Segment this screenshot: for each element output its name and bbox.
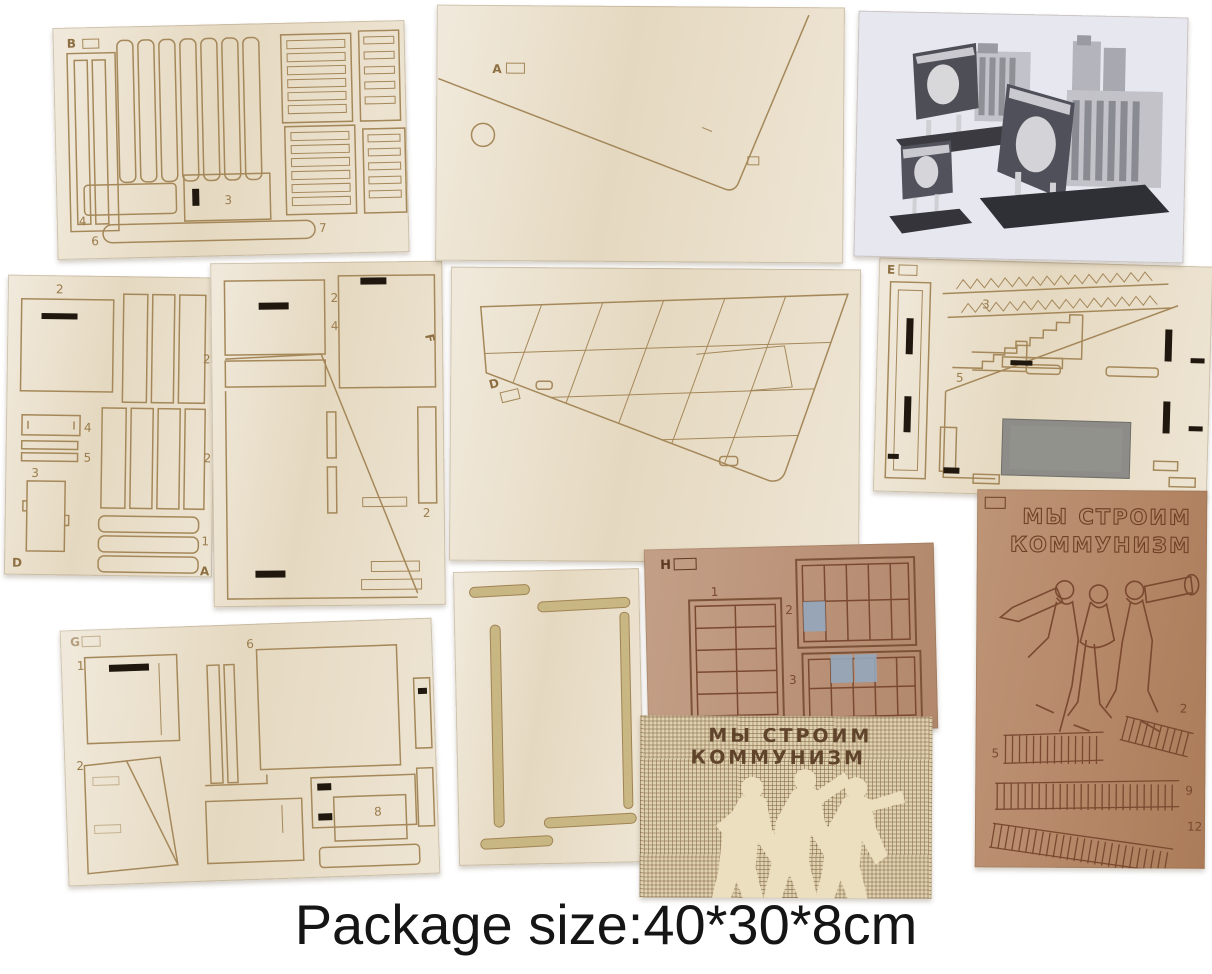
strip-parts-top (122, 294, 205, 403)
panel-part (224, 280, 325, 355)
strip-parts-mid (101, 408, 205, 509)
billboard-face-sheet: МЫ СТРОИМ КОММУНИЗМ (640, 715, 933, 899)
corner-cut (943, 391, 997, 478)
putty-patch (830, 655, 853, 684)
svg-text:2: 2 (203, 451, 211, 465)
slot-cutout (41, 313, 77, 320)
engraved-mark (93, 777, 119, 786)
maker-stamp (899, 265, 917, 275)
svg-text:7: 7 (319, 221, 327, 235)
maker-stamp (985, 497, 1005, 508)
svg-text:4: 4 (331, 319, 339, 333)
engraved-slots (469, 582, 637, 849)
strip-part (418, 407, 437, 503)
worker-figures-outline (1000, 573, 1199, 732)
slot-cutout (259, 302, 289, 309)
sheet-blank-engraving (453, 568, 645, 866)
maker-stamp (82, 636, 100, 647)
sheet-b-label: B (67, 36, 76, 50)
sheet-e-label: E (887, 263, 896, 277)
svg-text:5: 5 (991, 746, 999, 760)
svg-text:3: 3 (789, 673, 797, 687)
bracket-part (22, 415, 80, 436)
base-parts: 4 3 6 7 (78, 172, 327, 249)
svg-text:4: 4 (79, 214, 87, 228)
svg-text:5: 5 (83, 451, 91, 465)
laser-cut-sheet-b: B (52, 20, 409, 260)
side-strip-part (885, 282, 930, 479)
svg-text:3: 3 (31, 466, 39, 480)
render-small (889, 139, 974, 235)
slogan-line-1: МЫ СТРОИМ (1022, 505, 1192, 530)
slot-marks (536, 381, 739, 465)
laser-cut-sheet-f: 2 4 F 2 (210, 261, 446, 607)
svg-text:2: 2 (423, 506, 431, 520)
laser-cut-sheet-h: H 1 2 3 (644, 542, 938, 735)
gray-panel-texture (1009, 425, 1122, 472)
big-panel-part (256, 645, 400, 770)
svg-text:8: 8 (374, 804, 382, 818)
vertical-strip-parts (67, 53, 119, 232)
slat-part (22, 441, 78, 450)
sheet-d-center-engraving: D (449, 267, 861, 564)
slot-cutout (360, 277, 386, 284)
maker-stamp (83, 39, 99, 48)
edge-slots (1163, 329, 1206, 434)
svg-text:1: 1 (201, 534, 209, 548)
package-size-caption: Package size:40*30*8cm (0, 892, 1212, 957)
sheet-d-left-corner-label: A (200, 564, 210, 577)
laser-cut-sheet-relief: МЫ СТРОИМ КОММУНИЗМ 2 5 (975, 489, 1208, 869)
relief-sheet-engraving: МЫ СТРОИМ КОММУНИЗМ 2 5 (975, 489, 1208, 869)
inner-line (159, 663, 162, 735)
maker-stamp (506, 63, 524, 73)
slot-panel-part: 8 (311, 774, 420, 868)
sheet-b-engraving: B (52, 20, 409, 260)
sheet-g-engraving: G 1 2 6 8 (60, 618, 441, 887)
worker-figures-silhouette (709, 769, 905, 899)
preview-renders (853, 11, 1188, 264)
slat-parts-bottom (98, 516, 199, 573)
roof-grid (449, 294, 861, 525)
svg-text:5: 5 (956, 371, 964, 385)
ring-cutout (471, 123, 494, 146)
diagonal-cut (946, 299, 1178, 397)
svg-text:2: 2 (76, 759, 84, 773)
inner-slots (254, 411, 422, 591)
window-part-1 (689, 598, 784, 722)
tick-mark (702, 127, 712, 131)
billboard-engraving: МЫ СТРОИМ КОММУНИЗМ (640, 715, 933, 899)
laser-cut-sheet-g: G 1 2 6 8 (60, 618, 441, 887)
svg-text:2: 2 (331, 291, 339, 305)
panel-part (338, 275, 435, 388)
trapezoid-part (84, 757, 178, 874)
sheet-e-engraving: E 3 5 (873, 257, 1212, 500)
panel-part (20, 299, 113, 392)
svg-text:2: 2 (1180, 702, 1188, 716)
putty-patch (854, 654, 877, 683)
notched-part (22, 481, 69, 552)
svg-text:2: 2 (203, 352, 211, 366)
sheet-g-label: G (70, 635, 80, 649)
slat-part (225, 360, 325, 387)
slat-part (22, 453, 78, 462)
sheet-h-engraving: H 1 2 3 (644, 542, 938, 735)
svg-text:6: 6 (246, 637, 254, 651)
diagonal-cut-line (438, 13, 809, 191)
sheet-d-left-engraving: 2 2 2 4 5 3 (4, 275, 216, 578)
maker-stamp (500, 389, 520, 403)
thin-strip-parts (201, 662, 304, 863)
sheet-f-engraving: 2 4 F 2 (210, 261, 446, 607)
slot-cutout (109, 663, 149, 671)
svg-text:3: 3 (982, 297, 990, 311)
sheet-h-label: H (660, 558, 671, 573)
ladder-parts (281, 30, 407, 215)
edge-parts (414, 678, 435, 826)
svg-text:3: 3 (224, 193, 232, 207)
svg-text:1: 1 (711, 585, 719, 599)
svg-text:12: 12 (1187, 820, 1202, 834)
window-part-3 (802, 651, 922, 724)
svg-text:6: 6 (91, 234, 99, 248)
svg-text:4: 4 (84, 421, 92, 435)
sheet-a-engraving: A (435, 5, 845, 264)
maker-stamp (674, 558, 696, 570)
big-panel-outline (225, 353, 418, 599)
laser-cut-sheet-a: A (435, 5, 845, 264)
svg-text:2: 2 (56, 282, 64, 296)
sheet-a-label: A (492, 62, 502, 76)
slogan-line-2: КОММУНИЗМ (1010, 532, 1192, 557)
svg-text:2: 2 (785, 603, 793, 617)
laser-cut-sheet-blank (453, 568, 645, 866)
sheet-d-left-label: D (12, 556, 22, 570)
engraved-mark (94, 825, 120, 834)
slogan-line-1: МЫ СТРОИМ (708, 725, 872, 748)
assembly-preview-photo (853, 11, 1188, 264)
laser-cut-sheet-d-left: 2 2 2 4 5 3 (4, 275, 216, 578)
slot-cutout (192, 189, 199, 206)
stair-stringer-zigzags (942, 271, 1171, 318)
svg-text:1: 1 (77, 659, 85, 673)
laser-cut-sheet-e: E 3 5 (873, 257, 1212, 500)
railing-parts: 2 5 9 (989, 700, 1203, 869)
product-photo-stage: B (0, 0, 1212, 974)
comb-strip-parts (117, 37, 262, 182)
slogan-line-2: КОММУНИЗМ (691, 746, 866, 769)
window-part-2 (796, 557, 916, 648)
putty-patch (803, 601, 826, 632)
laser-cut-sheet-d-center: D (449, 267, 861, 564)
svg-text:9: 9 (1185, 784, 1193, 798)
